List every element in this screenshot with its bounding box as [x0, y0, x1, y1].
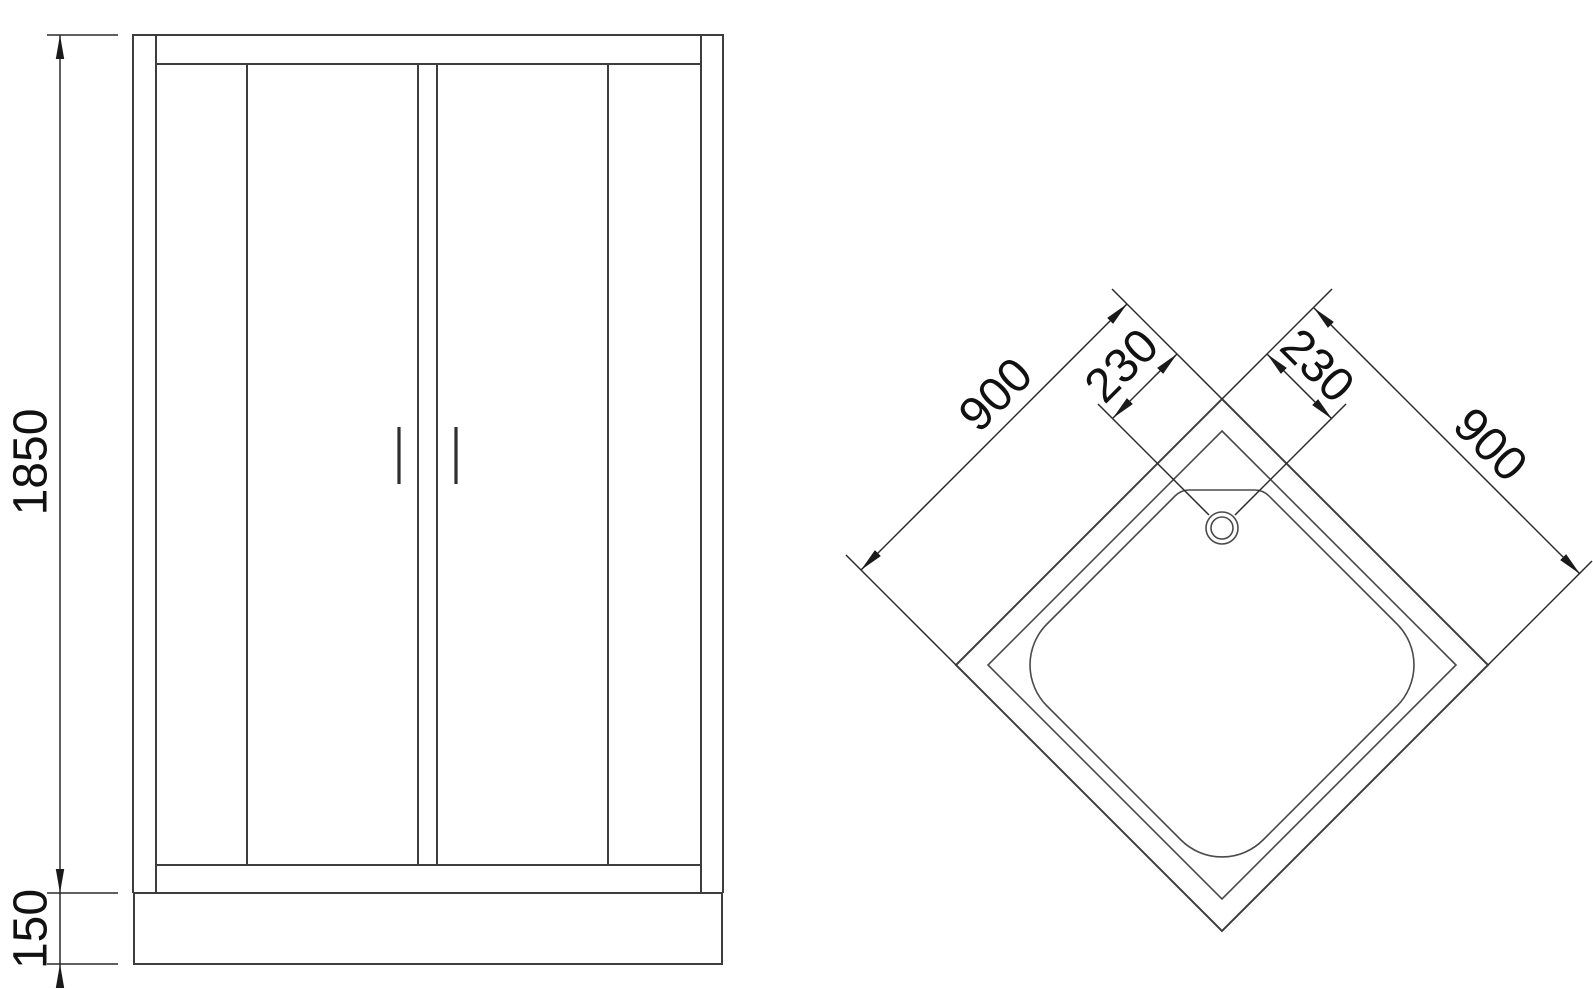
shower-frame-outline: [133, 35, 723, 893]
technical-drawing-page: 1850 150: [0, 0, 1593, 989]
plan-extension-lines: [846, 289, 1592, 665]
ext-line-right-vertex: [1488, 561, 1592, 665]
dim-line-900-left: [861, 304, 1127, 570]
dimension-edge-left-900: 900: [861, 304, 1127, 570]
ext-line-drain-upright: [1235, 404, 1346, 515]
dim-label-900-left: 900: [949, 348, 1043, 442]
dim-line-900-right: [1314, 308, 1580, 574]
dimension-edge-right-900: 900: [1314, 308, 1580, 574]
front-elevation-view: [133, 35, 723, 964]
ext-line-drain-upleft: [1098, 404, 1209, 515]
shower-tray-front: [134, 893, 722, 964]
dimension-drain-left-230: 230: [1075, 319, 1177, 418]
dim-label-230-left: 230: [1075, 319, 1169, 413]
dim-label-1850: 1850: [5, 409, 58, 516]
dimension-drain-right-230: 230: [1267, 319, 1364, 419]
dim-label-900-right: 900: [1443, 398, 1537, 492]
tray-basin-outline: [1030, 490, 1414, 857]
dim-label-230-right: 230: [1270, 319, 1364, 413]
tray-plan-view: [956, 399, 1488, 931]
dim-label-150: 150: [5, 889, 58, 969]
dimension-tray-height: 150: [5, 889, 118, 988]
technical-drawing-canvas: 1850 150: [0, 0, 1593, 989]
tray-outer-edge: [956, 399, 1488, 931]
ext-line-left-vertex: [846, 555, 956, 665]
dimension-enclosure-height: 1850: [5, 35, 118, 893]
drain-inner-circle: [1211, 517, 1233, 539]
tray-inner-rim: [988, 431, 1456, 899]
